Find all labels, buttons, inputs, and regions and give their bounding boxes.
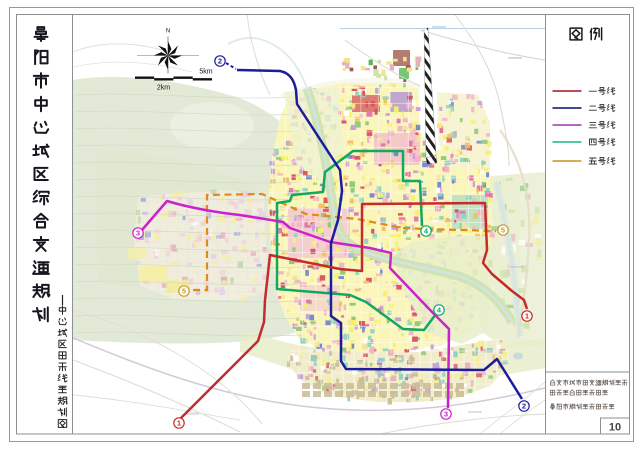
svg-text:5: 5 [182, 287, 186, 296]
svg-text:5km: 5km [199, 69, 212, 76]
svg-text:3: 3 [444, 410, 448, 419]
svg-text:N: N [166, 29, 170, 35]
svg-text:1: 1 [525, 312, 529, 321]
svg-text:2km: 2km [157, 85, 170, 92]
svg-text:2: 2 [522, 402, 526, 411]
svg-text:1: 1 [177, 419, 181, 428]
svg-text:5: 5 [501, 226, 505, 235]
svg-text:3: 3 [136, 229, 140, 238]
svg-text:10: 10 [609, 422, 621, 434]
svg-text:2: 2 [218, 57, 222, 66]
